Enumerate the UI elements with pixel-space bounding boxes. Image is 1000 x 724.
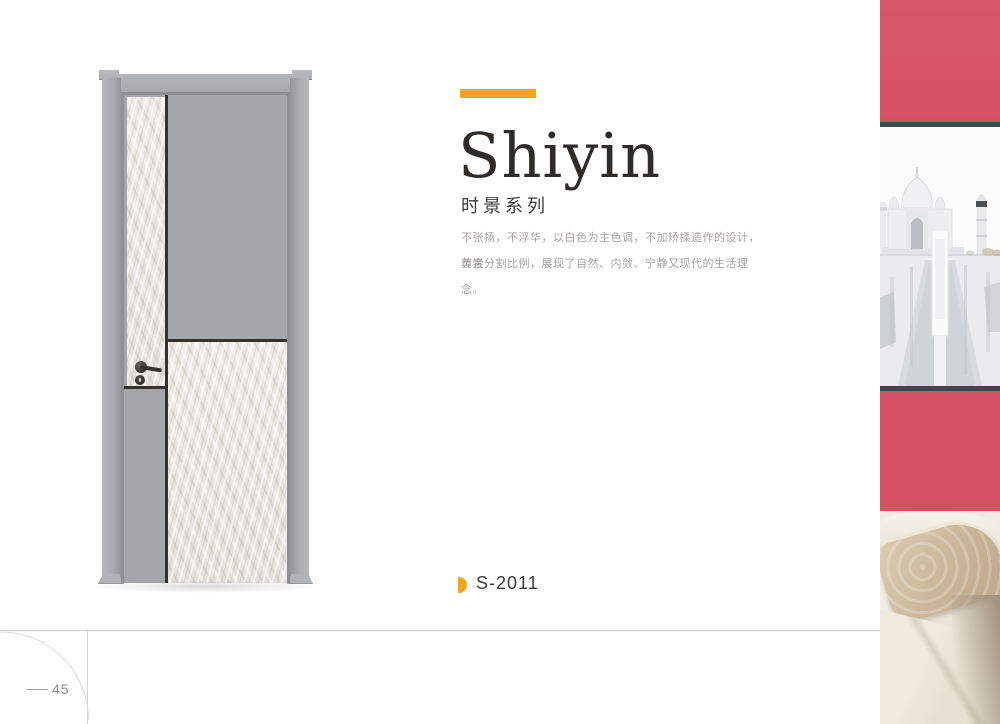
door-texture-panel-lower-right: [168, 342, 287, 583]
door-accent-line-horizontal: [168, 339, 287, 342]
sofa-shadow-right: [952, 595, 1000, 724]
footer-corner-arc: [0, 630, 100, 724]
red-wall-upper: [880, 0, 1000, 122]
interior-photo-strip: [880, 0, 1000, 724]
accent-bar: [460, 89, 536, 98]
footer-rule: [0, 630, 880, 631]
series-subtitle-cn: 时景系列: [461, 192, 549, 218]
door-texture-panel-upper-left: [127, 97, 165, 387]
door-keyhole: [135, 375, 145, 385]
door-frame-post-left: [102, 78, 121, 583]
door-product-image: [98, 68, 313, 592]
product-code: S-2011: [476, 573, 539, 594]
sofa: [880, 511, 1000, 724]
catalog-page: Shiyin 时景系列 不张扬，不浮华，以白色为主色调，不加矫揉造作的设计，尊崇…: [0, 0, 1000, 724]
door-frame-lintel: [102, 74, 309, 92]
page-number: 45: [52, 681, 70, 697]
taj-mahal-artwork: [880, 127, 1000, 386]
page-number-dash: [27, 689, 48, 690]
framed-art-taj-mahal: [880, 122, 1000, 391]
series-title: Shiyin: [458, 120, 661, 192]
door-accent-line-left-column: [124, 386, 165, 389]
red-wall-lower: [880, 391, 1000, 511]
door-frame-post-right: [290, 78, 309, 583]
series-description-line2: 黄金分割比例，展现了自然、内敛、宁静又现代的生活理念。: [461, 251, 771, 303]
door-floor-shadow: [90, 580, 321, 593]
product-code-marker-icon: [458, 577, 467, 593]
